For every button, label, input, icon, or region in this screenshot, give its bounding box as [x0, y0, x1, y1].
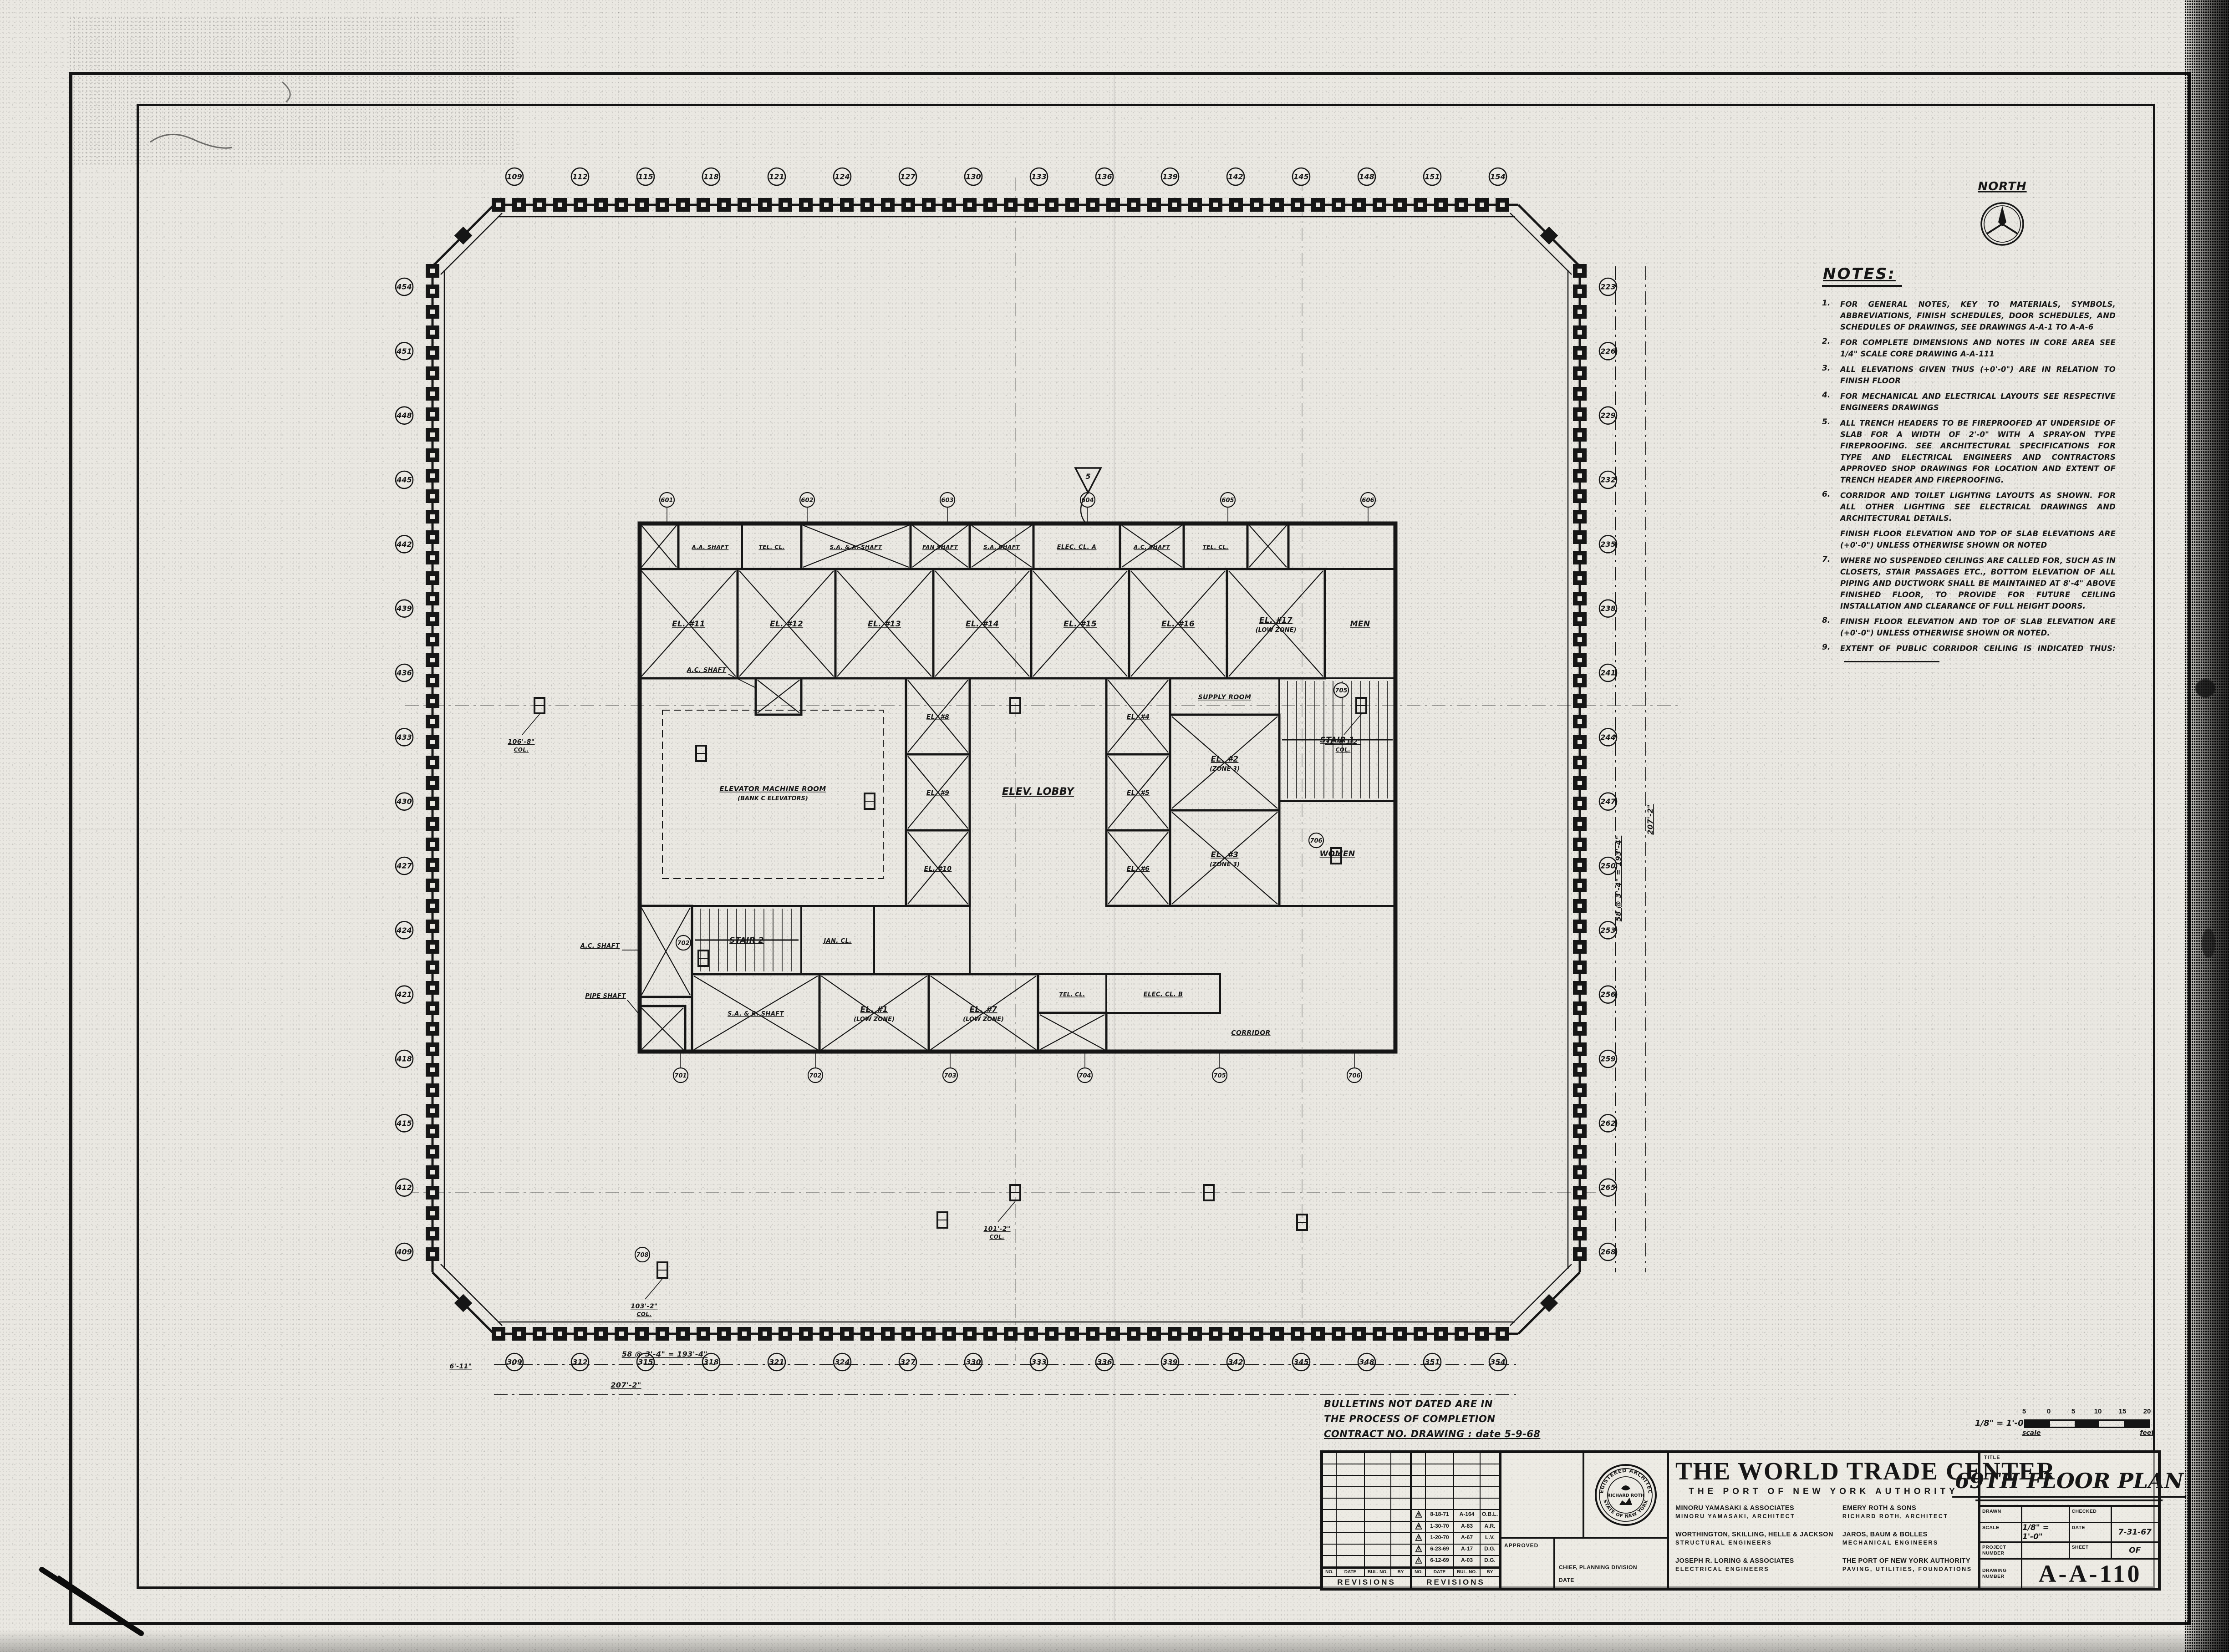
perimeter-column-web [1070, 1332, 1074, 1336]
room-label: EL. #4 [1127, 714, 1150, 721]
perimeter-column-web [1578, 658, 1582, 662]
perimeter-column-web [1578, 617, 1582, 621]
perimeter-column-web [1213, 1332, 1218, 1336]
north-arrow-point [1998, 206, 2006, 226]
revision-cell [1426, 1464, 1454, 1475]
grid-bubble-label: 424 [396, 926, 412, 935]
perimeter-column-web [1578, 945, 1582, 949]
perimeter-column-web [430, 1129, 435, 1134]
grid-bubble-label: 265 [1600, 1183, 1615, 1192]
perimeter-column-web [1578, 637, 1582, 642]
firm-name: JOSEPH R. LORING & ASSOCIATES [1675, 1557, 1833, 1566]
revision-cell [1412, 1453, 1426, 1464]
perimeter-column-web [1172, 1332, 1177, 1336]
ceiling-indicator-line [1844, 656, 1939, 662]
room-label: ELEVATOR MACHINE ROOM [719, 785, 826, 793]
perimeter-column-web [1131, 1332, 1136, 1336]
scale-segment [2075, 1421, 2099, 1427]
machine-room-dashed-zone [662, 710, 883, 879]
note-number: 1. [1822, 299, 1834, 333]
perimeter-column-web [1295, 203, 1300, 207]
perimeter-column-web [619, 203, 624, 207]
perimeter-column-web [1578, 965, 1582, 970]
room-label: WOMEN [1320, 849, 1355, 859]
room-label: EL. #15 [1064, 620, 1097, 629]
perimeter-column-web [430, 1027, 435, 1031]
room-label: MEN [1350, 620, 1370, 629]
grid-bubble-label: 130 [966, 173, 981, 181]
core-column-bubble-label: 704 [1079, 1073, 1091, 1079]
room-label: EL. #7 [970, 1005, 997, 1014]
revision-cell [1481, 1476, 1499, 1486]
room-sublabel: (LOW ZONE) [854, 1016, 895, 1023]
perimeter-column-web [430, 1252, 435, 1256]
firm-entry: EMERY ROTH & SONSRICHARD ROTH, ARCHITECT [1842, 1504, 1972, 1527]
perimeter-column-web [722, 203, 726, 207]
perimeter-column-web [1090, 1332, 1095, 1336]
revision-cell [1391, 1522, 1410, 1532]
perimeter-column-web [1578, 289, 1582, 294]
notes-list: 1.FOR GENERAL NOTES, KEY TO MATERIALS, S… [1822, 299, 2116, 666]
core-column-bubble-label: 702 [809, 1073, 821, 1079]
perimeter-column-web [906, 1332, 911, 1336]
seal-eagle-icon [1621, 1485, 1630, 1490]
core-room [1288, 524, 1395, 569]
revision-cell [1337, 1510, 1365, 1520]
room-label: EL. #11 [672, 620, 705, 629]
firm-list: MINORU YAMASAKI & ASSOCIATESMINORU YAMAS… [1675, 1504, 1972, 1583]
perimeter-column-web [558, 203, 562, 207]
revision-row [1323, 1533, 1410, 1545]
scale-tick-label: 10 [2094, 1408, 2102, 1415]
perimeter-column-web [1418, 203, 1423, 207]
revision-cell [1412, 1464, 1426, 1475]
revision-cell [1337, 1545, 1365, 1555]
revision-cell: 8-18-71 [1426, 1510, 1454, 1520]
room-label: EL. #16 [1161, 620, 1195, 629]
grid-bubble-label: 421 [396, 990, 412, 999]
perimeter-column-web [742, 1332, 747, 1336]
grid-bubble-label: 121 [769, 173, 784, 181]
revision-cell [1365, 1499, 1391, 1509]
perimeter-column-web [1578, 842, 1582, 847]
scale-segment [2124, 1421, 2148, 1427]
perimeter-column-web [430, 1190, 435, 1195]
drawing-number-value: A-A-110 [2022, 1560, 2158, 1588]
note-number [1822, 528, 1834, 551]
perimeter-column-web [1578, 330, 1582, 335]
perimeter-column-web [660, 203, 665, 207]
interior-column-bubble-label: 708 [636, 1252, 648, 1259]
grid-bubble-label: 256 [1600, 990, 1615, 999]
firm-name: EMERY ROTH & SONS [1842, 1504, 1972, 1513]
revision-cell [1391, 1533, 1410, 1544]
dim-leader [645, 1279, 662, 1299]
chamfer-inner-line [441, 213, 502, 274]
dim-leader [522, 714, 539, 735]
note-number: 8. [1822, 616, 1834, 639]
grid-bubble-label: 133 [1031, 173, 1046, 181]
revision-row [1412, 1499, 1499, 1510]
room-label: ELEV. LOBBY [1002, 786, 1075, 798]
perimeter-column-web [1578, 904, 1582, 908]
perimeter-column-web [742, 203, 747, 207]
title-fields-column: TITLE 69TH FLOOR PLAN DRAWN CHECKED SCAL… [1980, 1453, 2158, 1588]
perimeter-column-web [1578, 1231, 1582, 1236]
perimeter-column-web [1049, 203, 1054, 207]
revision-cell [1323, 1499, 1337, 1509]
revision-cell [1365, 1453, 1391, 1464]
perimeter-column-web [599, 203, 603, 207]
core-column-bubble-label: 701 [674, 1073, 687, 1079]
perimeter-column-web [1418, 1332, 1423, 1336]
overall-dim-right-1: 58 @ 3'-4" = 193'-4" [1614, 836, 1623, 922]
revision-row: △41-30-70A-83A.R. [1412, 1522, 1499, 1533]
core-column-bubble-label: 703 [944, 1073, 956, 1079]
perimeter-column-web [1377, 203, 1382, 207]
grid-bubble-label: 232 [1600, 476, 1615, 484]
perimeter-column-web [578, 1332, 583, 1336]
room-label: ELEC. CL. B [1144, 991, 1183, 998]
grid-bubble-label: 124 [835, 173, 850, 181]
revision-cell [1323, 1533, 1337, 1544]
revision-cell [1426, 1476, 1454, 1486]
perimeter-column-web [1234, 203, 1238, 207]
revision-header-cell: BUL. NO. [1365, 1569, 1391, 1576]
revision-cell: 1-20-70 [1426, 1533, 1454, 1544]
perimeter-column-web [1213, 203, 1218, 207]
perimeter-column-web [1578, 494, 1582, 498]
title-fields: DRAWN CHECKED SCALE 1/8" = 1'-0" DATE 7-… [1980, 1507, 2158, 1588]
ink-blot [2195, 679, 2215, 697]
grid-bubble-label: 235 [1600, 540, 1615, 549]
grid-bubble-label: 244 [1600, 733, 1615, 742]
perimeter-column-web [1336, 203, 1341, 207]
perimeter-column-web [430, 535, 435, 539]
perimeter-column-web [619, 1332, 624, 1336]
perimeter-column-web [1090, 203, 1095, 207]
note-item: 3.ALL ELEVATIONS GIVEN THUS (+0'-0") ARE… [1822, 364, 2116, 386]
note-text: FINISH FLOOR ELEVATION AND TOP OF SLAB E… [1840, 528, 2116, 551]
perimeter-column-web [1578, 1129, 1582, 1134]
room-label: EL. #14 [966, 620, 999, 629]
grid-bubble-label: 250 [1600, 862, 1615, 870]
revision-cell: △4 [1412, 1522, 1426, 1532]
note-number: 6. [1822, 490, 1834, 524]
bulletin-line3: CONTRACT NO. DRAWING : date 5-9-68 [1324, 1427, 1597, 1442]
perimeter-column-web [430, 740, 435, 744]
perimeter-column-web [430, 514, 435, 519]
perimeter-column-web [1578, 760, 1582, 765]
revision-cell: A-17 [1454, 1545, 1481, 1555]
grid-bubble-label: 448 [396, 411, 412, 420]
perimeter-column-web [430, 1211, 435, 1215]
room-label: EL. #17 [1259, 616, 1293, 625]
revision-header-cell: DATE [1337, 1569, 1365, 1576]
revision-cell: △2 [1412, 1545, 1426, 1555]
grid-bubble-label: 445 [396, 476, 412, 484]
perimeter-column-web [1398, 203, 1402, 207]
perimeter-column-web [1578, 1088, 1582, 1093]
perimeter-column-web [1578, 719, 1582, 724]
grid-bubble-label: 433 [396, 733, 412, 742]
perimeter-column-web [1578, 555, 1582, 560]
north-arrow-leg [2002, 224, 2017, 234]
perimeter-column-web [1578, 1190, 1582, 1195]
chamfer-inner-line [441, 1264, 502, 1326]
scale-note: 1/8" = 1'-0" [1975, 1418, 2028, 1428]
room-label: TEL. CL. [1203, 544, 1229, 550]
revision-row [1323, 1464, 1410, 1476]
firm-entry: JOSEPH R. LORING & ASSOCIATESELECTRICAL … [1675, 1557, 1833, 1580]
perimeter-column-web [1578, 1149, 1582, 1154]
perimeter-column-web [1578, 801, 1582, 806]
perimeter-column-web [1578, 1067, 1582, 1072]
perimeter-column-web [558, 1332, 562, 1336]
room-label: EL. #5 [1127, 790, 1150, 797]
firm-role: PAVING, UTILITIES, FOUNDATIONS [1842, 1566, 1972, 1573]
perimeter-column-web [701, 203, 706, 207]
revision-cell [1323, 1545, 1337, 1555]
checked-value [2112, 1507, 2158, 1522]
perimeter-column-web [496, 1332, 501, 1336]
perimeter-column-web [1295, 1332, 1300, 1336]
architect-seal-box: REGISTERED ARCHITECT STATE OF NEW YORK R… [1584, 1453, 1667, 1537]
perimeter-column-web [988, 203, 992, 207]
revision-header-cell: NO. [1412, 1569, 1426, 1576]
notes-panel: NOTES: 1.FOR GENERAL NOTES, KEY TO MATER… [1822, 265, 2116, 670]
grid-bubble-label: 253 [1600, 926, 1615, 935]
grid-bubble-label: 436 [396, 669, 412, 677]
note-item: 8.FINISH FLOOR ELEVATION AND TOP OF SLAB… [1822, 616, 2116, 639]
perimeter-column-web [430, 351, 435, 355]
revision-cell [1481, 1464, 1499, 1475]
revision-cell: D.G. [1481, 1556, 1499, 1566]
perimeter-column-web [430, 617, 435, 621]
scale-bar [2024, 1419, 2150, 1428]
perimeter-column-web [1377, 1332, 1382, 1336]
revision-triangle-marker: △2 [1414, 1545, 1423, 1552]
revision-row: △31-20-70A-67L.V. [1412, 1533, 1499, 1545]
room-label: EL. #13 [868, 620, 901, 629]
grid-bubble-label: 229 [1600, 411, 1615, 420]
perimeter-column-web [804, 1332, 808, 1336]
perimeter-column-web [1578, 781, 1582, 785]
revision-row [1323, 1522, 1410, 1533]
perimeter-column-web [763, 1332, 767, 1336]
grid-bubble-label: 142 [1228, 173, 1243, 181]
column-dim-text: 101'-2" [983, 1225, 1010, 1233]
grid-bubble-label: 136 [1097, 173, 1112, 181]
perimeter-column-web [967, 1332, 972, 1336]
revision-cell [1391, 1499, 1410, 1509]
perimeter-column-web [1439, 1332, 1443, 1336]
project-number-value [2022, 1543, 2070, 1558]
project-number-label: PROJECT NUMBER [1980, 1543, 2022, 1558]
revision-header-cell: BY [1481, 1569, 1499, 1576]
scale-tick-label: 5 [2022, 1408, 2026, 1415]
perimeter-column-web [1578, 371, 1582, 376]
revision-cell: 6-23-69 [1426, 1545, 1454, 1555]
drawing-number-label: DRAWING NUMBER [1980, 1560, 2022, 1588]
perimeter-column-web [783, 1332, 788, 1336]
perimeter-column-web [1578, 678, 1582, 683]
room-label: EL. #2 [1211, 755, 1239, 764]
revision-cell [1481, 1499, 1499, 1509]
revision-cell [1323, 1464, 1337, 1475]
revision-cell: 6-12-69 [1426, 1556, 1454, 1566]
grid-bubble-label: 454 [396, 283, 412, 291]
perimeter-column-web [578, 203, 583, 207]
revision-cell [1391, 1464, 1410, 1475]
room-label: ELEC. CL. A [1057, 544, 1097, 551]
scale-ticks: 505101520 [2024, 1408, 2147, 1418]
revision-cell: D.G. [1481, 1545, 1499, 1555]
sheet-title: 69TH FLOOR PLAN [1952, 1469, 2186, 1498]
perimeter-column-web [1111, 1332, 1115, 1336]
revision-cell [1337, 1533, 1365, 1544]
perimeter-column-web [1578, 535, 1582, 539]
grid-bubble-label: 442 [396, 540, 412, 549]
note-number: 2. [1822, 337, 1834, 360]
perimeter-column-web [430, 289, 435, 294]
grid-bubble-label: 451 [396, 347, 412, 356]
seal-crest-icon [1619, 1498, 1632, 1505]
project-identity: THE WORLD TRADE CENTER THE PORT OF NEW Y… [1669, 1453, 1980, 1588]
grid-bubble-label: 439 [396, 604, 412, 613]
perimeter-column-web [1480, 1332, 1484, 1336]
note-item: 4.FOR MECHANICAL AND ELECTRICAL LAYOUTS … [1822, 391, 2116, 413]
revision-row [1323, 1499, 1410, 1510]
firm-entry: WORTHINGTON, SKILLING, HELLE & JACKSONST… [1675, 1530, 1833, 1553]
perimeter-column-web [660, 1332, 665, 1336]
revision-header-cell: BUL. NO. [1454, 1569, 1481, 1576]
revision-row [1323, 1476, 1410, 1487]
firm-name: WORTHINGTON, SKILLING, HELLE & JACKSON [1675, 1530, 1833, 1539]
revision-cell: A-83 [1454, 1522, 1481, 1532]
core-room [874, 906, 970, 974]
room-label: JAN. CL. [822, 938, 851, 945]
revision-cell: L.V. [1481, 1533, 1499, 1544]
perimeter-column-web [1254, 1332, 1259, 1336]
revisions-table-right: △58-18-71A-164O.B.L.△41-30-70A-83A.R.△31… [1412, 1453, 1501, 1588]
perimeter-column-web [1439, 203, 1443, 207]
perimeter-column-web [783, 203, 788, 207]
perimeter-column-web [763, 203, 767, 207]
perimeter-column-web [681, 203, 685, 207]
perimeter-column-web [1578, 986, 1582, 990]
revision-cell [1391, 1545, 1410, 1555]
perimeter-column-web [681, 1332, 685, 1336]
revision-header-cell: NO. [1323, 1569, 1337, 1576]
perimeter-column-web [430, 719, 435, 724]
revision-row: △16-12-69A-03D.G. [1412, 1556, 1499, 1567]
grid-bubble-label: 151 [1425, 173, 1440, 181]
scale-segment [2099, 1421, 2124, 1427]
grid-bubble-label: 139 [1162, 173, 1177, 181]
core-column-bubble-label: 605 [1221, 497, 1234, 504]
perimeter-column-web [1578, 863, 1582, 867]
chamfer-inner-line [1510, 213, 1572, 274]
perimeter-column-web [1029, 203, 1033, 207]
firm-role: MECHANICAL ENGINEERS [1842, 1539, 1972, 1547]
perimeter-column-web [1172, 203, 1177, 207]
room-label: TEL. CL. [759, 544, 785, 550]
pen-scribble [282, 82, 290, 102]
room-sublabel: (ZONE 3) [1210, 861, 1240, 868]
perimeter-column-web [1578, 1047, 1582, 1052]
label-leader [728, 674, 757, 688]
perimeter-column-web [430, 371, 435, 376]
revision-cell [1323, 1522, 1337, 1532]
perimeter-column-web [599, 1332, 603, 1336]
room-label: FAN SHAFT [922, 544, 958, 550]
grid-bubble-label: 241 [1600, 669, 1615, 677]
room-label: EL. #9 [926, 790, 950, 797]
grid-bubble-label: 118 [703, 173, 718, 181]
perimeter-column-web [1578, 1108, 1582, 1113]
perimeter-column-web [804, 203, 808, 207]
revision-cell [1426, 1453, 1454, 1464]
scale-tick-label: 15 [2119, 1408, 2127, 1415]
drawn-label: DRAWN [1980, 1507, 2022, 1522]
room-sublabel: (LOW ZONE) [963, 1016, 1004, 1023]
perimeter-column-web [537, 203, 542, 207]
stamp-box-empty [1501, 1453, 1584, 1537]
revisions-title: REVISIONS [1323, 1577, 1410, 1588]
perimeter-column-web [885, 1332, 890, 1336]
perimeter-column-web [430, 658, 435, 662]
perimeter-column-web [947, 1332, 952, 1336]
perimeter-column-web [430, 1047, 435, 1052]
scale-tick-label: 0 [2047, 1408, 2051, 1415]
perimeter-column-web [824, 1332, 829, 1336]
room-label: S.A. SHAFT [983, 544, 1020, 550]
perimeter-column-web [1578, 269, 1582, 273]
bulletin-note: BULLETINS NOT DATED ARE IN THE PROCESS O… [1324, 1397, 1597, 1442]
project-authority: THE PORT OF NEW YORK AUTHORITY [1675, 1485, 1972, 1499]
grid-bubble-label: 427 [396, 862, 412, 870]
firm-entry: JAROS, BAUM & BOLLESMECHANICAL ENGINEERS [1842, 1530, 1972, 1553]
perimeter-column-web [1070, 203, 1074, 207]
grid-bubble-label: 238 [1600, 604, 1615, 613]
revision-cell: △3 [1412, 1533, 1426, 1544]
approved-box: APPROVED [1501, 1539, 1555, 1588]
pen-scribble [150, 134, 232, 148]
revision-cell [1323, 1556, 1337, 1566]
revision-cell [1454, 1487, 1481, 1498]
floor-plan-drawing: 1091121151181211241271301331361391421451… [0, 0, 2229, 1652]
revision-cell [1365, 1510, 1391, 1520]
firm-role: MINORU YAMASAKI, ARCHITECT [1675, 1513, 1833, 1520]
float-label: PIPE SHAFT [585, 993, 626, 1000]
interior-column-bubble-label: 705 [1335, 687, 1347, 694]
scale-label: SCALE [1980, 1523, 2022, 1541]
notes-heading: NOTES: [1822, 265, 1902, 287]
revision-triangle-marker: △3 [1414, 1533, 1423, 1541]
revision-cell [1365, 1545, 1391, 1555]
perimeter-column-web [1578, 351, 1582, 355]
perimeter-column-web [430, 1006, 435, 1011]
revision-cell [1454, 1499, 1481, 1509]
grid-bubble-label: 430 [396, 797, 412, 806]
note-text: CORRIDOR AND TOILET LIGHTING LAYOUTS AS … [1840, 490, 2116, 524]
perimeter-column-web [517, 203, 521, 207]
note-item: 6.CORRIDOR AND TOILET LIGHTING LAYOUTS A… [1822, 490, 2116, 524]
revision-cell: 1-30-70 [1426, 1522, 1454, 1532]
column-dim-text: 106'-8" [508, 738, 534, 746]
north-label: NORTH [1978, 180, 2026, 193]
